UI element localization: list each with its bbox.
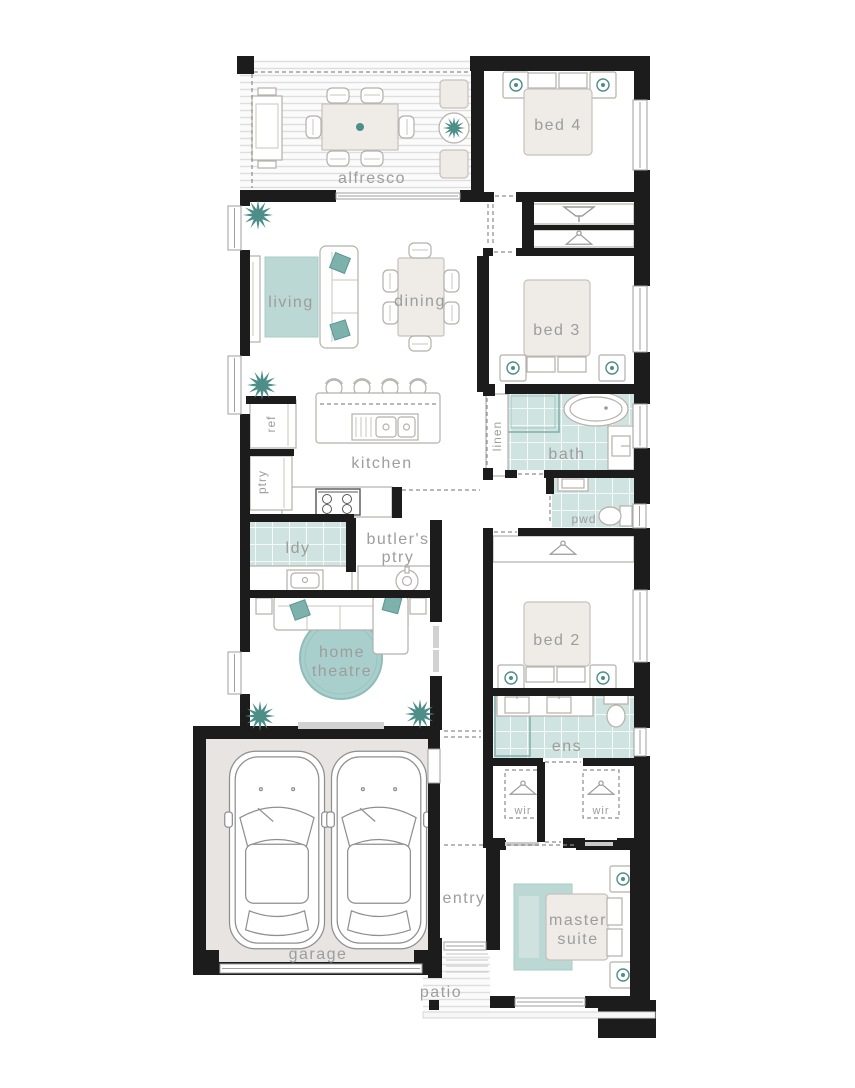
car-icon (327, 751, 432, 949)
alfresco-label: alfresco (338, 170, 406, 187)
butlers-ptry-label-2: ptry (382, 549, 415, 566)
pillow (607, 929, 622, 956)
garage-label: garage (289, 946, 348, 963)
porch-slab (423, 1012, 655, 1018)
master-rug-inner (519, 896, 539, 958)
bath-label: bath (548, 446, 585, 463)
home-theatre-label-2: theatre (312, 663, 372, 680)
ref-label: ref (264, 415, 278, 432)
pillow (559, 73, 587, 88)
linen-label: linen (490, 421, 504, 451)
ens-label: ens (552, 738, 582, 755)
bed2-label: bed 2 (533, 632, 581, 649)
pillow (607, 898, 622, 925)
outdoor-chair-icon (399, 116, 414, 138)
outdoor-chair-icon (327, 88, 349, 103)
wir-left-label: wir (513, 805, 531, 817)
bedside-lamp-icon (599, 355, 625, 381)
kitchen-sink-icon (352, 414, 418, 440)
bed4-furniture (503, 72, 616, 155)
robe-cabinet (493, 536, 634, 562)
kitchen-label: kitchen (351, 455, 412, 472)
bedside-lamp-icon (500, 355, 526, 381)
toilet-icon (604, 695, 628, 704)
outdoor-chair-icon (361, 88, 383, 103)
toilet-icon (620, 506, 632, 526)
dining-chair-icon (444, 270, 459, 292)
hanger-icon (588, 781, 614, 794)
plant-icon (247, 370, 277, 400)
dining-chair-icon (444, 302, 459, 324)
dining-chair-icon (383, 270, 398, 292)
bedside-lamp-icon (590, 665, 616, 691)
pillow (528, 73, 556, 88)
bedside-lamp-icon (498, 665, 524, 691)
entry-label: entry (442, 890, 485, 907)
pwd-label: pwd (571, 512, 596, 526)
outdoor-chair-icon (327, 151, 349, 166)
lounge-chair (440, 150, 468, 178)
pillow (557, 667, 585, 682)
lounge-chair (440, 80, 468, 108)
bed3-label: bed 3 (533, 322, 581, 339)
side-table (256, 598, 272, 614)
bed2-furniture (493, 536, 634, 691)
bedside-lamp-icon (590, 72, 616, 98)
garage-internal-door (428, 749, 440, 783)
car-icon (225, 751, 330, 949)
master-suite-label-2: suite (557, 931, 598, 948)
bed-icon (524, 280, 590, 356)
side-table (410, 598, 426, 614)
door-sill (585, 842, 613, 846)
ptry-label: ptry (255, 470, 269, 494)
master-suite-label-1: master (549, 912, 607, 929)
pillow (527, 357, 555, 372)
floor-plan: alfresco bed 4 living dining bed 3 kitch… (0, 0, 855, 1088)
ldy-label: ldy (286, 540, 311, 557)
outdoor-chair-icon (306, 116, 321, 138)
dining-chair-icon (409, 336, 431, 351)
butlers-ptry-label-1: butler's (366, 531, 429, 548)
floor-plan-svg: alfresco bed 4 living dining bed 3 kitch… (0, 0, 855, 1088)
pillow (526, 667, 554, 682)
dining-chair-icon (409, 243, 431, 258)
home-theatre-label-1: home (319, 644, 365, 661)
bed4-label: bed 4 (534, 117, 582, 134)
living-label: living (268, 294, 313, 311)
laundry-butlers-furniture (246, 566, 434, 594)
patio-label: patio (420, 984, 462, 1001)
outdoor-chair-icon (361, 151, 383, 166)
pillow (558, 357, 586, 372)
wir-right-label: wir (591, 805, 609, 817)
hanger-icon (510, 781, 536, 794)
dining-label: dining (394, 293, 446, 310)
theatre-door-panel (298, 722, 384, 729)
